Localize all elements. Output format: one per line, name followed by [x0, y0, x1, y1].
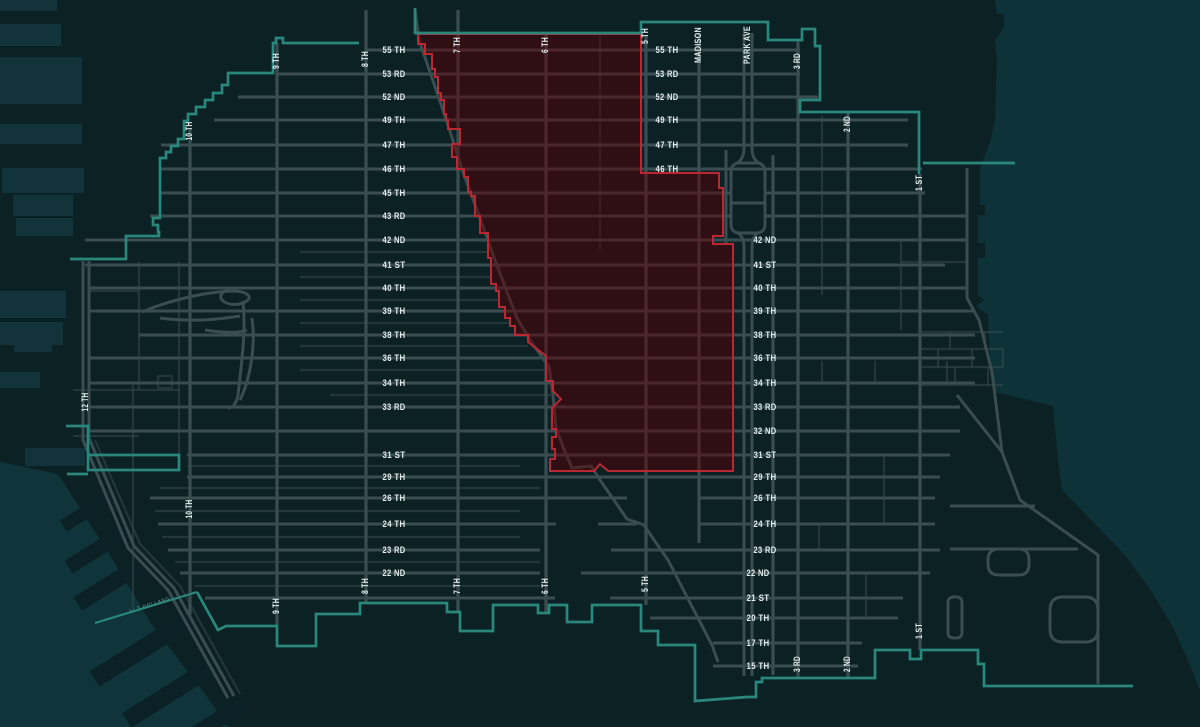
svg-text:47 TH: 47 TH [383, 140, 406, 150]
svg-text:29 TH: 29 TH [383, 472, 406, 482]
svg-text:MADISON: MADISON [693, 27, 703, 63]
svg-text:23 RD: 23 RD [383, 545, 406, 555]
svg-text:5 TH: 5 TH [640, 28, 650, 44]
svg-text:40 TH: 40 TH [383, 283, 406, 293]
svg-text:9 TH: 9 TH [271, 53, 281, 69]
svg-text:55 TH: 55 TH [656, 45, 679, 55]
svg-text:7 TH: 7 TH [452, 578, 462, 594]
svg-text:43 RD: 43 RD [383, 211, 406, 221]
svg-text:36 TH: 36 TH [754, 353, 777, 363]
svg-text:10 TH: 10 TH [184, 122, 194, 141]
svg-text:47 TH: 47 TH [656, 140, 679, 150]
svg-text:2 ND: 2 ND [842, 656, 852, 672]
svg-text:36 TH: 36 TH [383, 353, 406, 363]
svg-text:52 ND: 52 ND [383, 92, 406, 102]
svg-text:17 TH: 17 TH [747, 638, 770, 648]
svg-text:31 ST: 31 ST [383, 450, 406, 460]
svg-text:33 RD: 33 RD [754, 402, 777, 412]
svg-text:31 ST: 31 ST [754, 450, 777, 460]
svg-text:PARK AVE: PARK AVE [742, 26, 752, 64]
svg-text:21 ST: 21 ST [747, 593, 770, 603]
svg-text:15 TH: 15 TH [747, 661, 770, 671]
svg-text:53 RD: 53 RD [656, 69, 679, 79]
svg-text:33 RD: 33 RD [383, 402, 406, 412]
svg-text:34 TH: 34 TH [383, 378, 406, 388]
svg-text:26 TH: 26 TH [383, 493, 406, 503]
svg-text:53 RD: 53 RD [383, 69, 406, 79]
svg-text:12 TH: 12 TH [80, 393, 90, 412]
svg-text:2 ND: 2 ND [842, 116, 852, 132]
svg-text:38 TH: 38 TH [754, 330, 777, 340]
svg-text:55 TH: 55 TH [383, 45, 406, 55]
svg-text:39 TH: 39 TH [383, 306, 406, 316]
svg-text:6 TH: 6 TH [540, 578, 550, 594]
svg-text:1 ST: 1 ST [914, 623, 924, 639]
svg-text:46 TH: 46 TH [383, 164, 406, 174]
svg-text:1 ST: 1 ST [914, 175, 924, 191]
svg-text:39 TH: 39 TH [754, 306, 777, 316]
svg-text:38 TH: 38 TH [383, 330, 406, 340]
svg-text:24 TH: 24 TH [754, 519, 777, 529]
svg-text:45 TH: 45 TH [383, 188, 406, 198]
svg-text:7 TH: 7 TH [452, 37, 462, 53]
svg-text:41 ST: 41 ST [383, 260, 406, 270]
svg-text:42 ND: 42 ND [383, 235, 406, 245]
svg-text:49 TH: 49 TH [656, 115, 679, 125]
svg-text:10 TH: 10 TH [184, 500, 194, 519]
svg-text:46 TH: 46 TH [656, 164, 679, 174]
svg-text:26 TH: 26 TH [754, 493, 777, 503]
svg-text:41 ST: 41 ST [754, 260, 777, 270]
svg-text:22 ND: 22 ND [747, 568, 770, 578]
svg-text:3 RD: 3 RD [792, 656, 802, 672]
svg-text:20 TH: 20 TH [747, 613, 770, 623]
svg-text:52 ND: 52 ND [656, 92, 679, 102]
svg-text:23 RD: 23 RD [754, 545, 777, 555]
svg-text:49 TH: 49 TH [383, 115, 406, 125]
svg-text:32 ND: 32 ND [754, 426, 777, 436]
svg-text:22 ND: 22 ND [383, 568, 406, 578]
svg-text:40 TH: 40 TH [754, 283, 777, 293]
svg-text:3 RD: 3 RD [792, 53, 802, 69]
svg-text:9 TH: 9 TH [271, 598, 281, 614]
svg-text:34 TH: 34 TH [754, 378, 777, 388]
svg-text:5 TH: 5 TH [640, 576, 650, 592]
svg-text:42 ND: 42 ND [754, 235, 777, 245]
svg-text:8 TH: 8 TH [360, 578, 370, 594]
svg-text:8 TH: 8 TH [360, 51, 370, 67]
svg-text:29 TH: 29 TH [754, 472, 777, 482]
svg-text:24 TH: 24 TH [383, 519, 406, 529]
svg-text:6 TH: 6 TH [540, 37, 550, 53]
